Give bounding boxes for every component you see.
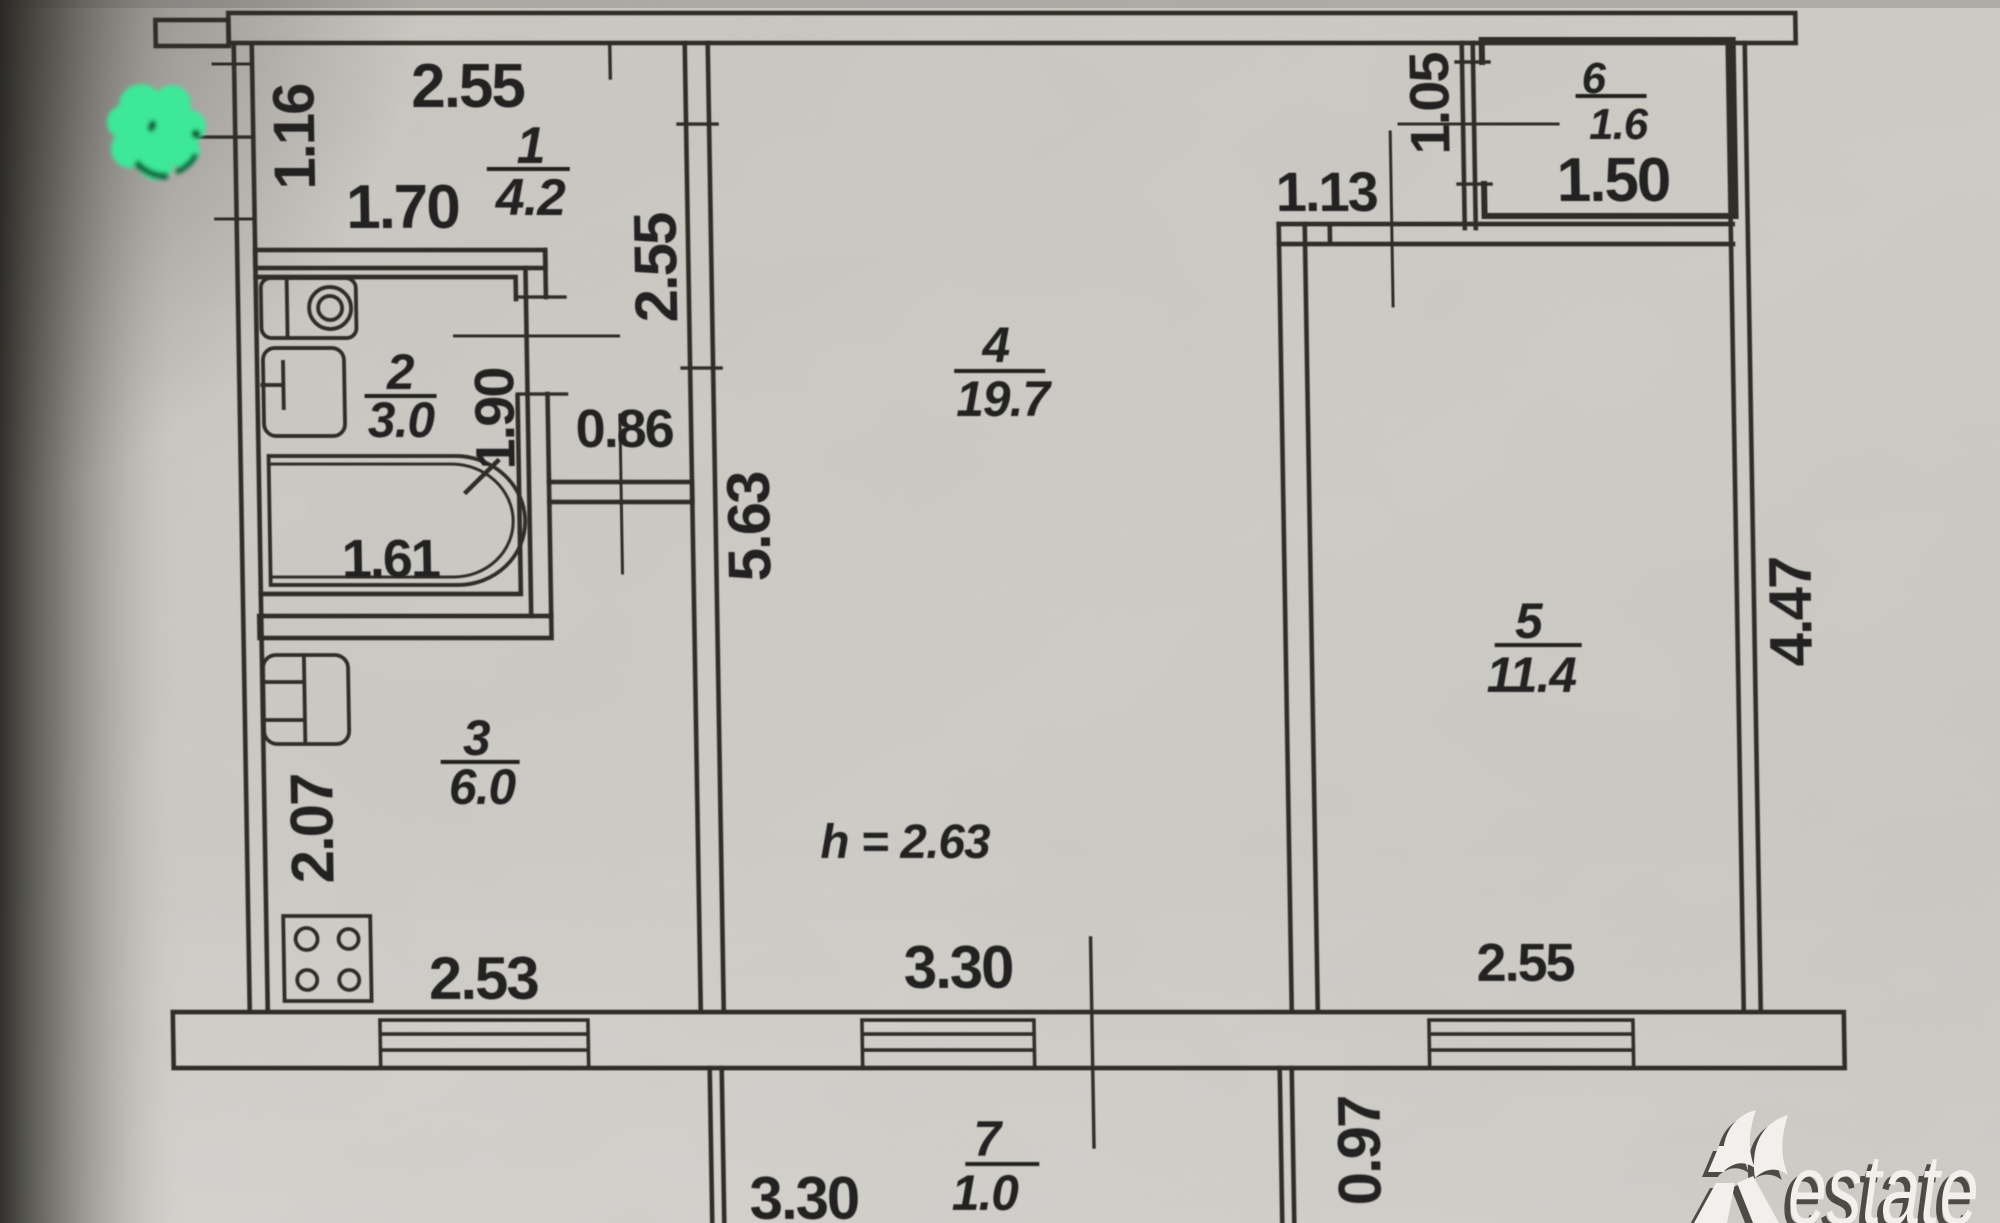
- svg-text:2.55: 2.55: [411, 52, 525, 121]
- svg-text:2.07: 2.07: [278, 775, 347, 884]
- svg-text:2.55: 2.55: [1476, 933, 1575, 993]
- svg-text:2.53: 2.53: [428, 945, 539, 1012]
- svg-text:3: 3: [462, 710, 491, 766]
- svg-text:5: 5: [1514, 593, 1544, 649]
- svg-text:1.61: 1.61: [341, 529, 440, 589]
- svg-text:1.16: 1.16: [261, 84, 328, 190]
- svg-text:1.90: 1.90: [462, 369, 527, 470]
- svg-text:3.30: 3.30: [903, 934, 1013, 1001]
- svg-text:19.7: 19.7: [955, 371, 1052, 427]
- svg-text:1.0: 1.0: [951, 1165, 1020, 1221]
- svg-text:4.47: 4.47: [1756, 558, 1825, 667]
- svg-text:6.0: 6.0: [448, 759, 517, 815]
- svg-text:0.97: 0.97: [1325, 1097, 1394, 1206]
- svg-text:3.0: 3.0: [367, 392, 436, 448]
- svg-text:4: 4: [981, 317, 1010, 373]
- svg-text:1: 1: [516, 117, 545, 175]
- svg-text:1.05: 1.05: [1397, 53, 1462, 155]
- svg-text:estate: estate: [1788, 1135, 1979, 1223]
- svg-text:1.70: 1.70: [346, 173, 460, 242]
- svg-text:5.63: 5.63: [715, 472, 784, 581]
- svg-text:11.4: 11.4: [1486, 647, 1577, 703]
- svg-text:1.50: 1.50: [1556, 146, 1670, 215]
- svg-text:7: 7: [973, 1111, 1004, 1167]
- svg-text:2.55: 2.55: [622, 213, 691, 322]
- svg-text:0.86: 0.86: [575, 399, 674, 459]
- svg-text:4.2: 4.2: [494, 169, 566, 227]
- svg-text:1.6: 1.6: [1589, 100, 1650, 149]
- svg-text:3.30: 3.30: [749, 1165, 859, 1223]
- svg-text:h = 2.63: h = 2.63: [820, 816, 992, 869]
- svg-text:1.13: 1.13: [1275, 160, 1378, 223]
